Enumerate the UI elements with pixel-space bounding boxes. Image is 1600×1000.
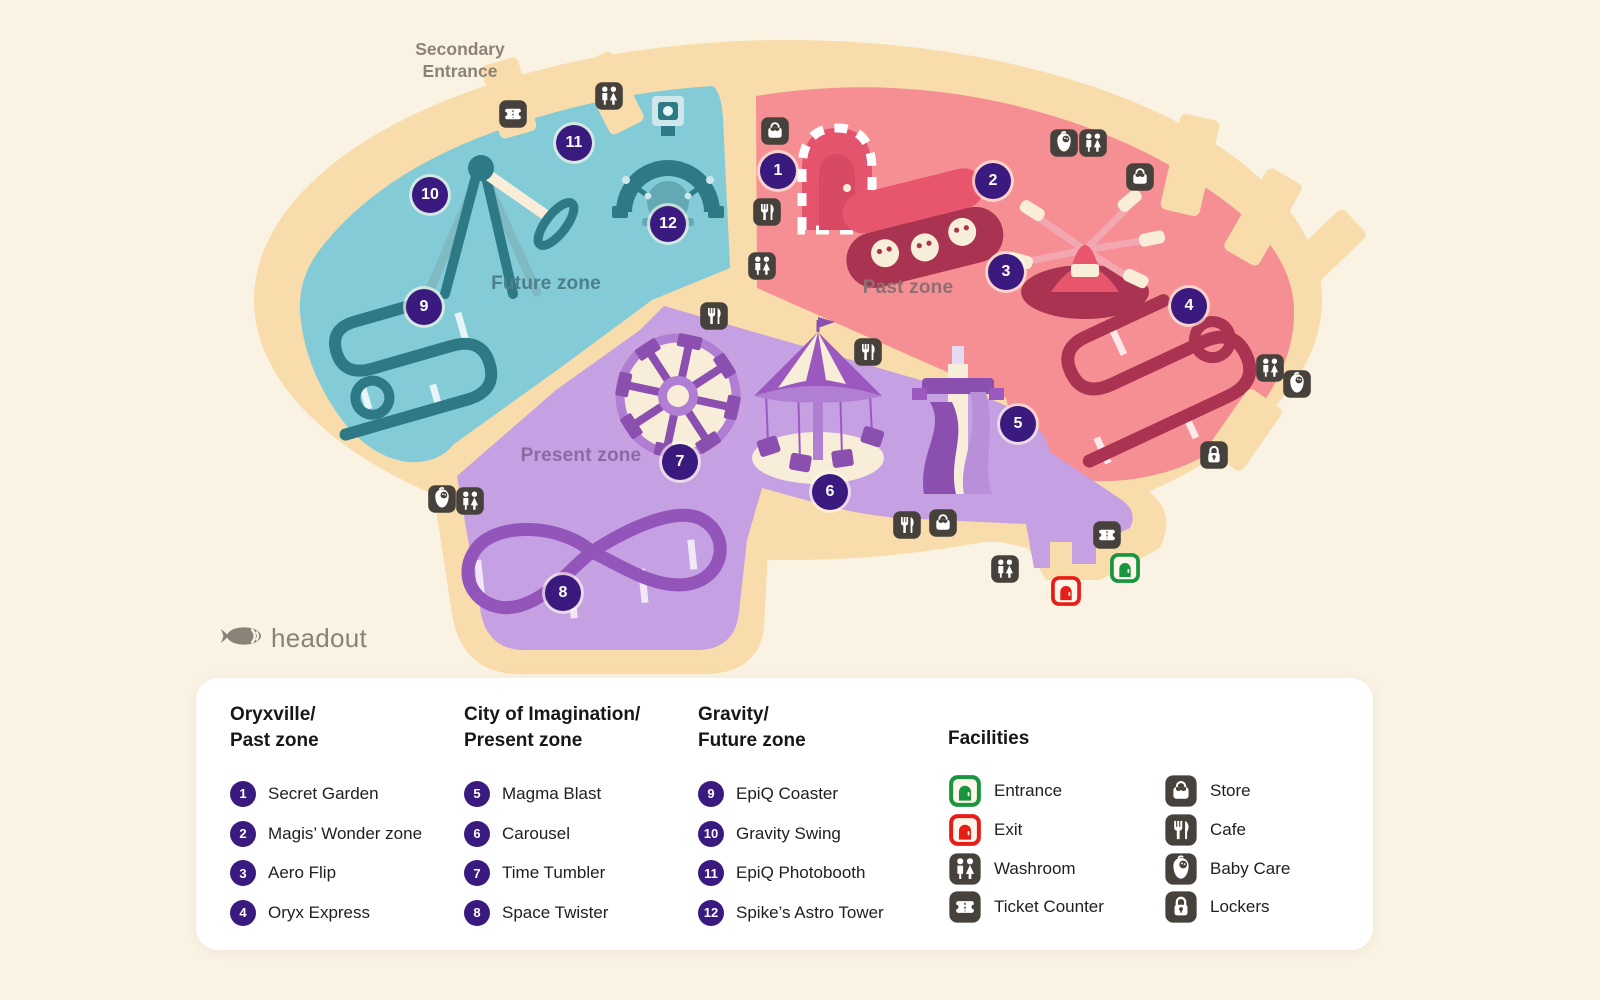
lockers-icon xyxy=(1164,890,1198,924)
babycare-icon xyxy=(1282,369,1312,399)
facilities-title: Facilities xyxy=(948,728,1029,750)
legend-item-8: 8Space Twister xyxy=(464,893,608,933)
legend-group-1: Oryxville/ Past zone1Secret Garden2Magis… xyxy=(230,678,460,950)
facility-label: Washroom xyxy=(994,859,1076,879)
park-map-page: Secondary EntranceFuture zonePast zonePr… xyxy=(0,0,1600,1000)
legend-item-1: 1Secret Garden xyxy=(230,774,422,814)
facility-label: Ticket Counter xyxy=(994,897,1104,917)
legend-marker-5: 5 xyxy=(464,781,490,807)
facility-label: Store xyxy=(1210,781,1251,801)
ticket-icon xyxy=(498,99,528,129)
map-marker-2: 2 xyxy=(975,163,1011,199)
legend-item-10: 10Gravity Swing xyxy=(698,814,884,854)
headout-logo: headout xyxy=(220,622,367,655)
map-marker-12: 12 xyxy=(650,206,686,242)
legend-item-label: Spike’s Astro Tower xyxy=(736,903,884,923)
legend-group-2: City of Imagination/ Present zone5Magma … xyxy=(464,678,694,950)
entrance-icon xyxy=(948,774,982,808)
facility-legend-entrance: Entrance xyxy=(948,772,1164,811)
lockers-icon xyxy=(1199,440,1229,470)
legend-item-9: 9EpiQ Coaster xyxy=(698,774,884,814)
map-marker-1: 1 xyxy=(760,153,796,189)
legend-item-label: Carousel xyxy=(502,824,570,844)
washroom-icon xyxy=(455,486,485,516)
washroom-icon xyxy=(747,251,777,281)
legend-marker-7: 7 xyxy=(464,860,490,886)
map-marker-11: 11 xyxy=(556,125,592,161)
facility-label: Baby Care xyxy=(1210,859,1290,879)
legend-marker-4: 4 xyxy=(230,900,256,926)
cafe-icon xyxy=(892,510,922,540)
store-icon xyxy=(760,116,790,146)
washroom-icon xyxy=(1255,353,1285,383)
facility-legend-washroom: Washroom xyxy=(948,849,1164,888)
facility-legend-lockers: Lockers xyxy=(1164,888,1380,927)
entrance-door-icon xyxy=(1109,552,1141,584)
legend-item-11: 11EpiQ Photobooth xyxy=(698,853,884,893)
legend-marker-12: 12 xyxy=(698,900,724,926)
legend-group-title: Gravity/ Future zone xyxy=(698,702,806,754)
ticket-icon xyxy=(1092,520,1122,550)
facility-legend-ticket: Ticket Counter xyxy=(948,888,1164,927)
map-marker-3: 3 xyxy=(988,254,1024,290)
zone-label-future: Future zone xyxy=(491,273,601,295)
facilities-columns: Entrance Exit Washroom Ticket Counter St… xyxy=(948,772,1380,927)
legend-marker-1: 1 xyxy=(230,781,256,807)
map-marker-4: 4 xyxy=(1171,288,1207,324)
legend-item-label: EpiQ Coaster xyxy=(736,784,838,804)
babycare-icon xyxy=(427,484,457,514)
store-icon xyxy=(928,508,958,538)
facility-label: Lockers xyxy=(1210,897,1270,917)
facility-label: Cafe xyxy=(1210,820,1246,840)
map-marker-8: 8 xyxy=(545,575,581,611)
babycare-icon xyxy=(1049,128,1079,158)
legend-item-label: Gravity Swing xyxy=(736,824,841,844)
facility-legend-store: Store xyxy=(1164,772,1380,811)
legend-item-label: Space Twister xyxy=(502,903,608,923)
legend-item-4: 4Oryx Express xyxy=(230,893,422,933)
cafe-icon xyxy=(752,197,782,227)
store-icon xyxy=(1164,774,1198,808)
zone-label-present: Present zone xyxy=(521,445,642,467)
babycare-icon xyxy=(1164,852,1198,886)
legend-card: Oryxville/ Past zone1Secret Garden2Magis… xyxy=(196,678,1373,950)
legend-group-title: Oryxville/ Past zone xyxy=(230,702,319,754)
map-marker-5: 5 xyxy=(1000,406,1036,442)
legend-item-6: 6Carousel xyxy=(464,814,608,854)
store-icon xyxy=(1125,162,1155,192)
legend-marker-3: 3 xyxy=(230,860,256,886)
map-marker-6: 6 xyxy=(812,474,848,510)
blimp-icon xyxy=(220,622,262,655)
legend-marker-8: 8 xyxy=(464,900,490,926)
map-marker-9: 9 xyxy=(406,289,442,325)
legend-marker-9: 9 xyxy=(698,781,724,807)
legend-marker-6: 6 xyxy=(464,821,490,847)
washroom-icon xyxy=(1078,128,1108,158)
cafe-icon xyxy=(853,337,883,367)
map-marker-7: 7 xyxy=(662,444,698,480)
legend-item-label: Magis’ Wonder zone xyxy=(268,824,422,844)
map-marker-10: 10 xyxy=(412,177,448,213)
facilities-col-2: Store Cafe Baby Care Lockers xyxy=(1164,772,1380,927)
legend-item-7: 7Time Tumbler xyxy=(464,853,608,893)
legend-item-2: 2Magis’ Wonder zone xyxy=(230,814,422,854)
exit-icon xyxy=(948,813,982,847)
secondary-entrance-label: Secondary Entrance xyxy=(415,38,504,82)
facility-legend-babycare: Baby Care xyxy=(1164,849,1380,888)
legend-item-label: Time Tumbler xyxy=(502,863,605,883)
facilities-col-1: Entrance Exit Washroom Ticket Counter xyxy=(948,772,1164,927)
zone-label-past: Past zone xyxy=(863,277,954,299)
legend-item-5: 5Magma Blast xyxy=(464,774,608,814)
washroom-icon xyxy=(594,81,624,111)
legend-marker-11: 11 xyxy=(698,860,724,886)
headout-logo-text: headout xyxy=(271,623,367,654)
facility-label: Exit xyxy=(994,820,1022,840)
legend-marker-2: 2 xyxy=(230,821,256,847)
facility-label: Entrance xyxy=(994,781,1062,801)
facility-legend-cafe: Cafe xyxy=(1164,811,1380,850)
legend-marker-10: 10 xyxy=(698,821,724,847)
legend-item-label: EpiQ Photobooth xyxy=(736,863,865,883)
facility-legend-exit: Exit xyxy=(948,811,1164,850)
cafe-icon xyxy=(1164,813,1198,847)
exit-door-icon xyxy=(1050,575,1082,607)
washroom-icon xyxy=(990,554,1020,584)
legend-item-label: Aero Flip xyxy=(268,863,336,883)
legend-group-title: City of Imagination/ Present zone xyxy=(464,702,640,754)
washroom-icon xyxy=(948,852,982,886)
ticket-icon xyxy=(948,890,982,924)
legend-item-label: Secret Garden xyxy=(268,784,379,804)
cafe-icon xyxy=(699,301,729,331)
legend-item-label: Oryx Express xyxy=(268,903,370,923)
legend-item-label: Magma Blast xyxy=(502,784,601,804)
legend-group-3: Gravity/ Future zone9EpiQ Coaster10Gravi… xyxy=(698,678,928,950)
legend-item-3: 3Aero Flip xyxy=(230,853,422,893)
legend-item-12: 12Spike’s Astro Tower xyxy=(698,893,884,933)
